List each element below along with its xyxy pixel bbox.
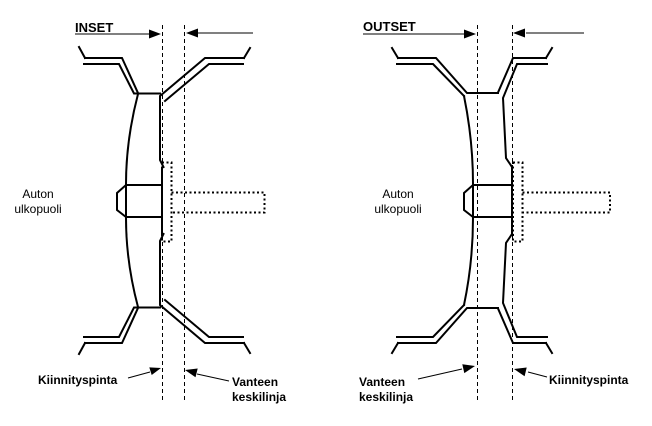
outset-hub-flange-dotted xyxy=(513,163,523,242)
inset-rim-flange-tick-bottom-left xyxy=(79,343,85,354)
inset-rim-top-left-inner xyxy=(84,64,160,94)
outset-rim-flange-tick-top-right xyxy=(546,48,552,58)
outset-rim-flange-tick-top-left xyxy=(392,48,398,58)
inset-centerline-label-line2: keskilinja xyxy=(232,390,286,404)
outset-rim-top-left-inner xyxy=(397,64,464,96)
inset-centerline-label-line1: Vanteen xyxy=(232,375,278,389)
inset-rim-flange-tick-top-left xyxy=(79,47,85,58)
outset-hub-axle-dotted xyxy=(513,163,610,242)
inset-mounting-surface-label: Kiinnityspinta xyxy=(38,373,118,387)
outset-mounting-surface-callout: Kiinnityspinta xyxy=(514,368,629,388)
outset-centerline-pointer-line xyxy=(418,369,462,379)
outset-outside-label: Auton ulkopuoli xyxy=(374,187,421,216)
inset-title: INSET xyxy=(75,20,113,35)
inset-diagram: INSET Auton ulkopuoli Kiinnityspinta Van… xyxy=(14,20,286,404)
inset-arrowhead-right-icon xyxy=(149,30,161,39)
outset-axle-stub-dotted xyxy=(523,193,611,213)
inset-centerline-pointer-line xyxy=(197,374,229,381)
outset-centerline-label-line1: Vanteen xyxy=(359,375,405,389)
inset-outside-label: Auton ulkopuoli xyxy=(14,187,61,216)
inset-wheel-cross-section xyxy=(79,47,250,354)
outset-mounting-surface-arrowhead-icon xyxy=(514,368,527,377)
inset-hub-axle-dotted xyxy=(162,163,265,242)
outset-rim-flange-tick-bottom-right xyxy=(546,343,552,353)
outset-diagram: OUTSET Auton ulkopuoli Vanteen keskilinj… xyxy=(359,19,629,404)
outset-arrowhead-right-icon xyxy=(464,30,476,39)
inset-rim-top-right-outer xyxy=(160,58,244,167)
inset-mounting-surface-callout: Kiinnityspinta xyxy=(38,367,161,387)
diagram-canvas: INSET Auton ulkopuoli Kiinnityspinta Van… xyxy=(0,0,652,426)
inset-arrowhead-left-icon xyxy=(186,29,198,38)
outset-outside-label-line2: ulkopuoli xyxy=(374,202,421,216)
outset-rim-bottom-right-inner xyxy=(503,234,547,337)
inset-mounting-surface-pointer-line xyxy=(128,372,150,378)
outset-rim-bottom-left-inner xyxy=(397,305,464,337)
outset-wheel-cross-section xyxy=(392,48,552,353)
outset-centerline-arrowhead-icon xyxy=(462,364,475,373)
inset-disc-face-line xyxy=(126,94,138,307)
outset-outside-label-line1: Auton xyxy=(382,187,413,201)
outset-disc-face-line xyxy=(464,96,473,305)
inset-centerline-callout: Vanteen keskilinja xyxy=(185,369,286,405)
outset-mounting-surface-label: Kiinnityspinta xyxy=(549,373,629,387)
inset-hub-cap xyxy=(117,185,126,217)
outset-title: OUTSET xyxy=(363,19,416,34)
inset-rim-bottom-left-inner xyxy=(84,308,160,338)
inset-centerline-arrowhead-icon xyxy=(185,369,198,378)
inset-outside-label-line1: Auton xyxy=(22,187,53,201)
inset-rim-flange-tick-top-right xyxy=(244,48,250,58)
outset-rim-flange-tick-bottom-left xyxy=(392,343,398,353)
inset-rim-flange-tick-bottom-right xyxy=(244,343,250,353)
inset-axle-stub-dotted xyxy=(172,193,265,213)
outset-centerline-label-line2: keskilinja xyxy=(359,390,413,404)
inset-rim-bottom-right-outer xyxy=(160,234,244,343)
inset-hub-flange-dotted xyxy=(162,163,172,242)
outset-centerline-callout: Vanteen keskilinja xyxy=(359,364,475,404)
inset-outside-label-line2: ulkopuoli xyxy=(14,202,61,216)
wheel-offset-diagram: INSET Auton ulkopuoli Kiinnityspinta Van… xyxy=(0,0,652,426)
inset-mounting-surface-arrowhead-icon xyxy=(149,367,161,375)
outset-hub-cap xyxy=(464,185,473,217)
outset-arrowhead-left-icon xyxy=(513,29,525,38)
outset-rim-top-right-inner xyxy=(503,64,547,167)
outset-mounting-surface-pointer-line xyxy=(528,372,547,377)
